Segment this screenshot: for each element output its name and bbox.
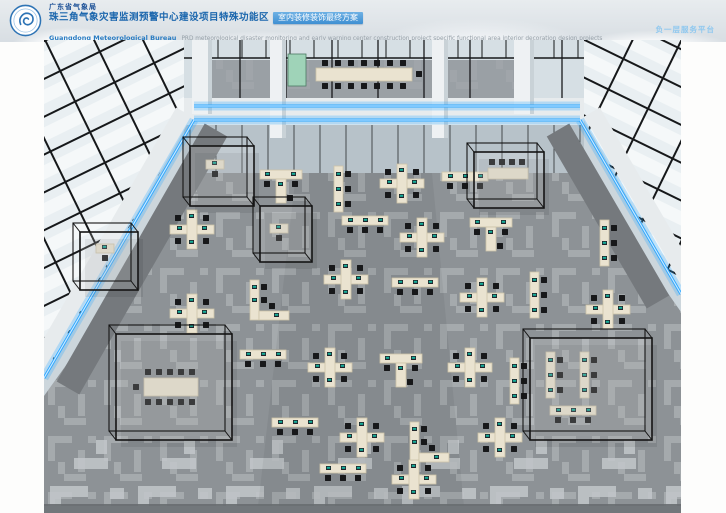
wall-display-panel [288, 54, 306, 86]
glass-room [73, 223, 143, 297]
desk-cluster-hrow [240, 350, 286, 367]
desk-cluster-cross [340, 418, 384, 457]
interior-rendering [44, 40, 681, 513]
page-title: 珠三角气象灾害监测预警中心建设项目特殊功能区 [49, 13, 269, 24]
desk-cluster-hrow [320, 464, 366, 481]
desk-cluster-vrow [600, 220, 617, 266]
header-text-block: 广东省气象局 珠三角气象灾害监测预警中心建设项目特殊功能区 室内装修装饰最终方案… [49, 3, 602, 45]
glass-room [109, 325, 237, 447]
desk-cluster-hrow [272, 418, 318, 435]
bureau-logo-icon [9, 4, 42, 37]
glass-room [523, 329, 657, 447]
desk-cluster-cross [448, 348, 492, 387]
presentation-slide: 广东省气象局 珠三角气象灾害监测预警中心建设项目特殊功能区 室内装修装饰最终方案… [0, 0, 726, 513]
desk-cluster-cross [478, 418, 522, 457]
glass-room [183, 137, 259, 213]
desk-cluster-hrow [342, 216, 388, 233]
desk-cluster-cross [170, 210, 214, 249]
glass-room [253, 197, 317, 269]
desk-cluster-vrow [530, 272, 547, 318]
desk-cluster-cross [324, 260, 368, 299]
floor-bottom-edge [44, 504, 681, 513]
desk-cluster-cross [586, 290, 630, 329]
desk-cluster-cross [170, 294, 214, 333]
page-label: 负一层服务平台 [656, 24, 716, 35]
desk-cluster-hrow [392, 278, 438, 295]
desk-cluster-vrow [510, 358, 527, 404]
desk-cluster-cross [460, 278, 504, 317]
desk-cluster-cross [400, 218, 444, 257]
title-tag-badge: 室内装修装饰最终方案 [273, 12, 363, 24]
desk-cluster-cross [308, 348, 352, 387]
desk-cluster-vrow [334, 166, 351, 212]
org-name: 广东省气象局 [49, 3, 602, 11]
render-scene [44, 40, 681, 513]
slide-header: 广东省气象局 珠三角气象灾害监测预警中心建设项目特殊功能区 室内装修装饰最终方案… [0, 0, 726, 42]
desk-cluster-cross [380, 164, 424, 203]
desk-cluster-cross [392, 460, 436, 499]
glass-room [467, 143, 549, 215]
